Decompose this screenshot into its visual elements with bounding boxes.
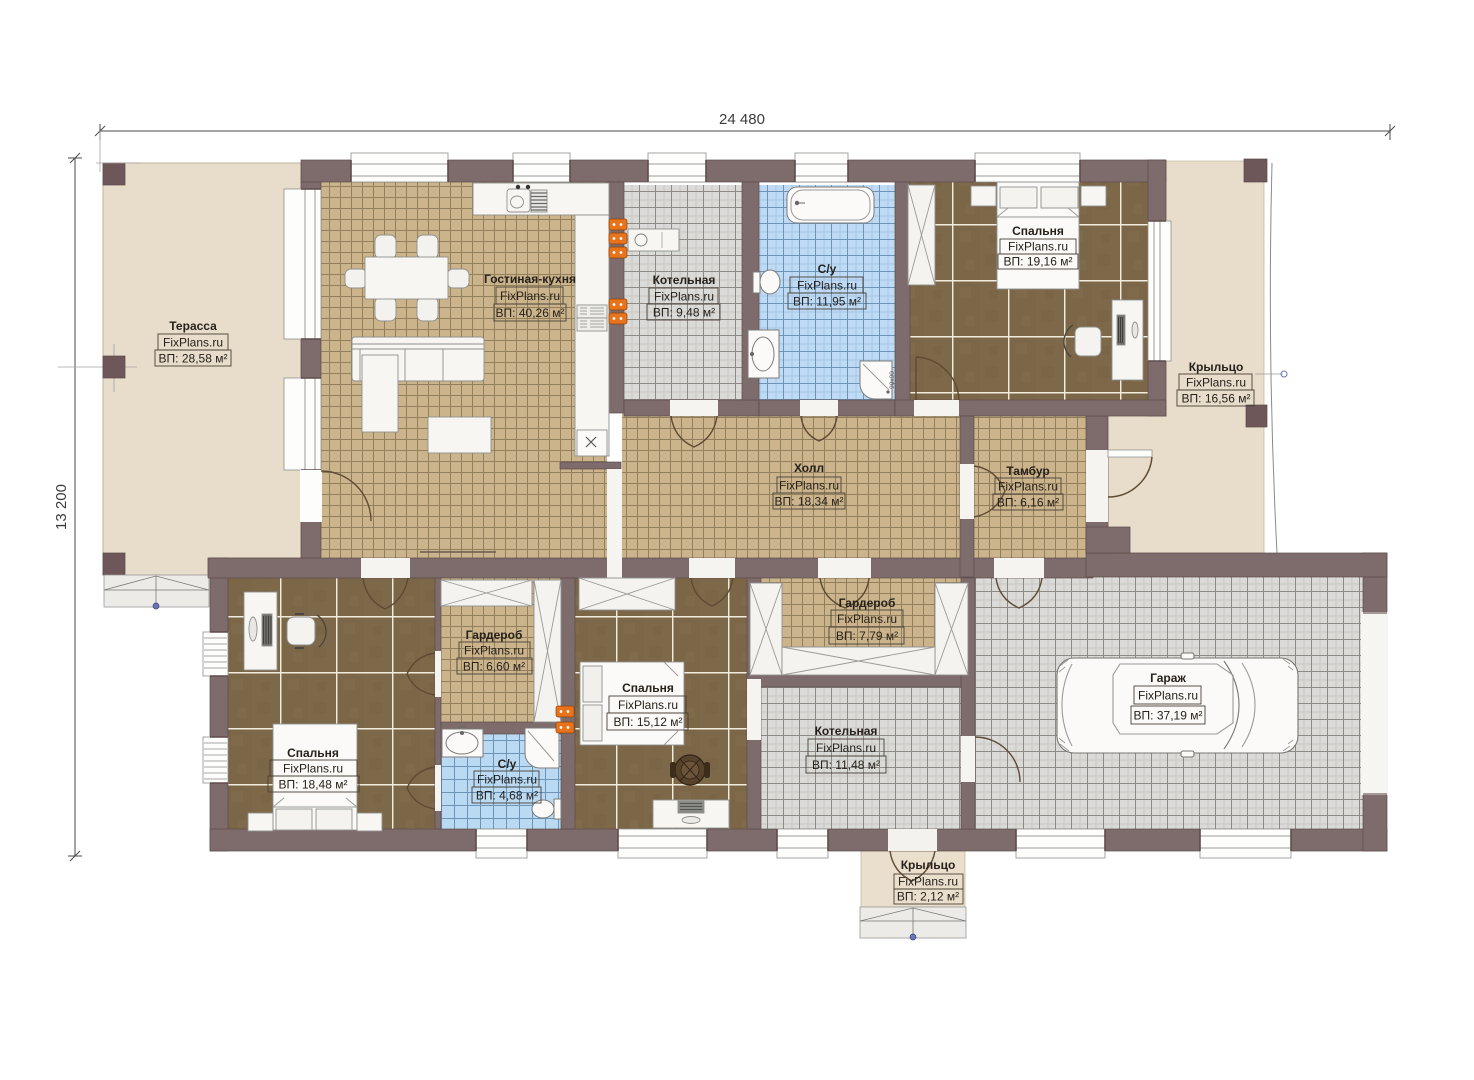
svg-text:FixPlans.ru: FixPlans.ru: [654, 290, 714, 304]
svg-text:С/у: С/у: [818, 262, 837, 276]
svg-text:ВП: 18,34 м²: ВП: 18,34 м²: [775, 495, 844, 509]
svg-text:Холл: Холл: [794, 461, 824, 475]
svg-text:Котельная: Котельная: [653, 273, 716, 287]
svg-text:FixPlans.ru: FixPlans.ru: [1008, 240, 1068, 254]
svg-text:FixPlans.ru: FixPlans.ru: [837, 612, 897, 626]
svg-text:ВП: 15,12 м²: ВП: 15,12 м²: [614, 715, 683, 729]
svg-text:Гардероб: Гардероб: [839, 596, 896, 610]
svg-text:Крыльцо: Крыльцо: [901, 858, 956, 872]
svg-text:Гостиная-кухня: Гостиная-кухня: [484, 272, 576, 286]
svg-text:Спальня: Спальня: [622, 681, 674, 695]
svg-text:ВП: 18,48 м²: ВП: 18,48 м²: [279, 778, 348, 792]
svg-text:FixPlans.ru: FixPlans.ru: [618, 698, 678, 712]
svg-text:ВП: 40,26 м²: ВП: 40,26 м²: [496, 306, 565, 320]
svg-text:Спальня: Спальня: [287, 746, 339, 760]
svg-text:ВП: 9,48 м²: ВП: 9,48 м²: [653, 306, 715, 320]
svg-text:FixPlans.ru: FixPlans.ru: [464, 644, 524, 658]
svg-text:Котельная: Котельная: [815, 724, 878, 738]
svg-text:FixPlans.ru: FixPlans.ru: [163, 336, 223, 350]
svg-text:FixPlans.ru: FixPlans.ru: [998, 480, 1058, 494]
svg-text:FixPlans.ru: FixPlans.ru: [779, 479, 839, 493]
svg-text:ВП: 28,58 м²: ВП: 28,58 м²: [159, 352, 228, 366]
svg-text:FixPlans.ru: FixPlans.ru: [500, 289, 560, 303]
svg-text:С/у: С/у: [498, 757, 517, 771]
svg-text:FixPlans.ru: FixPlans.ru: [477, 773, 537, 787]
svg-text:24 480: 24 480: [719, 111, 765, 128]
svg-text:ВП: 11,95 м²: ВП: 11,95 м²: [793, 295, 861, 309]
svg-text:FixPlans.ru: FixPlans.ru: [898, 875, 958, 889]
svg-text:FixPlans.ru: FixPlans.ru: [1138, 689, 1198, 703]
svg-text:FixPlans.ru: FixPlans.ru: [816, 741, 876, 755]
svg-text:ВП: 7,79 м²: ВП: 7,79 м²: [836, 629, 898, 643]
svg-text:Терасса: Терасса: [169, 319, 217, 333]
svg-text:Гараж: Гараж: [1150, 671, 1186, 685]
svg-text:FixPlans.ru: FixPlans.ru: [797, 279, 857, 293]
svg-text:Крыльцо: Крыльцо: [1189, 360, 1244, 374]
svg-text:ВП: 11,48 м²: ВП: 11,48 м²: [812, 758, 880, 772]
svg-text:ВП: 19,16 м²: ВП: 19,16 м²: [1004, 255, 1073, 269]
svg-text:ВП: 37,19 м²: ВП: 37,19 м²: [1134, 709, 1203, 723]
svg-text:13 200: 13 200: [53, 484, 70, 530]
svg-text:ВП: 16,56 м²: ВП: 16,56 м²: [1182, 392, 1251, 406]
svg-text:FixPlans.ru: FixPlans.ru: [283, 762, 343, 776]
svg-text:Спальня: Спальня: [1012, 224, 1064, 238]
svg-text:FixPlans.ru: FixPlans.ru: [1186, 376, 1246, 390]
svg-text:ВП: 6,60 м²: ВП: 6,60 м²: [463, 660, 525, 674]
svg-text:Гардероб: Гардероб: [466, 628, 523, 642]
svg-text:90х90: 90х90: [889, 371, 896, 389]
svg-text:Тамбур: Тамбур: [1006, 464, 1050, 478]
svg-text:ВП: 2,12 м²: ВП: 2,12 м²: [897, 890, 959, 904]
svg-text:ВП: 4,68 м²: ВП: 4,68 м²: [476, 789, 538, 803]
svg-text:ВП: 6,16 м²: ВП: 6,16 м²: [997, 496, 1059, 510]
